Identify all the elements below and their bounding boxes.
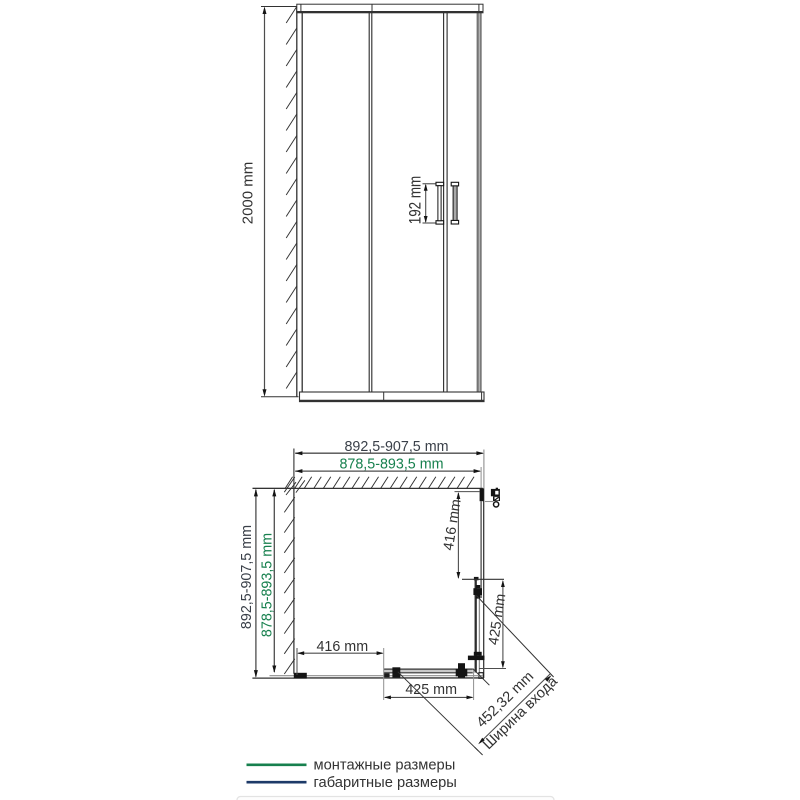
svg-text:878,5-893,5 mm: 878,5-893,5 mm [260,533,276,637]
svg-text:192 mm: 192 mm [405,176,424,225]
svg-text:878,5-893,5 mm: 878,5-893,5 mm [339,457,443,473]
svg-text:монтажные размеры: монтажные размеры [314,758,456,774]
svg-text:2000 mm: 2000 mm [240,162,257,225]
svg-text:416 mm: 416 mm [316,639,368,655]
svg-text:425 mm: 425 mm [405,682,457,698]
svg-text:габаритные размеры: габаритные размеры [314,775,457,791]
svg-text:892,5-907,5 mm: 892,5-907,5 mm [239,525,255,629]
svg-text:892,5-907,5 mm: 892,5-907,5 mm [344,439,448,455]
